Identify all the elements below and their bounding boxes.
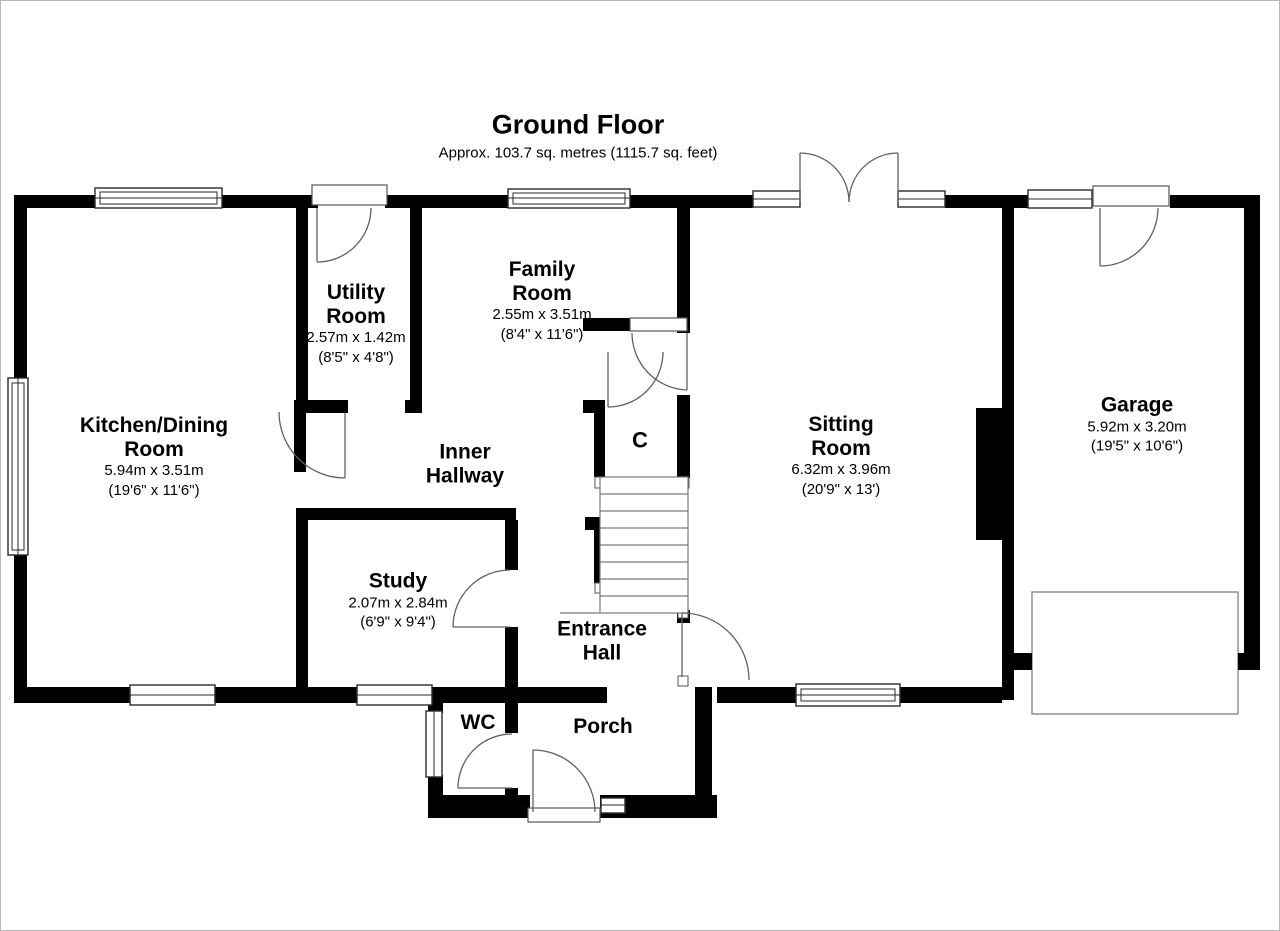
- kitchen-top-window: [95, 188, 222, 208]
- wc-door: [458, 734, 512, 788]
- garage-door-panel: [1032, 592, 1238, 714]
- floorplan: Ground Floor Approx. 103.7 sq. metres (1…: [0, 0, 1280, 931]
- garage-door-threshold: [1093, 186, 1169, 206]
- page-title: Ground Floor: [318, 111, 838, 141]
- room-label-kitchen: Kitchen/Dining Room 5.94m x 3.51m (19'6"…: [39, 414, 269, 500]
- garage-window: [1028, 190, 1092, 208]
- kitchen-left-window: [8, 378, 28, 555]
- sitting-window-right: [898, 191, 945, 207]
- room-label-sitting: Sitting Room 6.32m x 3.96m (20'9" x 13'): [726, 413, 956, 499]
- utility-door-threshold: [312, 185, 387, 205]
- garage-top-door: [1100, 208, 1158, 266]
- room-label-cupboard: C: [525, 429, 755, 454]
- family-room-window: [508, 189, 630, 208]
- room-label-study: Study 2.07m x 2.84m (6'9" x 9'4"): [283, 570, 513, 633]
- kitchen-bottom-window-2: [357, 685, 432, 705]
- room-label-garage: Garage 5.92m x 3.20m (19'5" x 10'6"): [1022, 394, 1252, 457]
- front-door-threshold: [528, 808, 600, 822]
- french-door-right: [849, 153, 898, 202]
- room-label-entrance: Entrance Hall: [487, 617, 717, 664]
- front-door: [533, 750, 595, 812]
- utility-bottom-door: [279, 412, 345, 478]
- page-subtitle: Approx. 103.7 sq. metres (1115.7 sq. fee…: [318, 144, 838, 161]
- plan-title-block: Ground Floor Approx. 103.7 sq. metres (1…: [318, 111, 838, 162]
- stairs: [560, 477, 688, 613]
- utility-top-door: [317, 208, 371, 262]
- sitting-window-left: [753, 191, 800, 207]
- room-label-porch: Porch: [488, 715, 718, 739]
- porch-window: [601, 798, 625, 813]
- room-label-family: Family Room 2.55m x 3.51m (8'4" x 11'6"): [427, 258, 657, 344]
- kitchen-bottom-window-1: [130, 685, 215, 705]
- sitting-bottom-window: [796, 684, 900, 706]
